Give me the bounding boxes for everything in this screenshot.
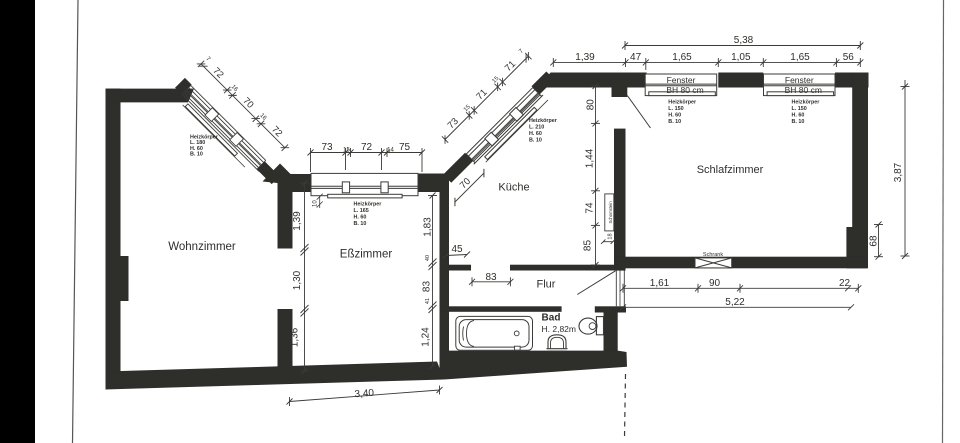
- svg-text:68: 68: [869, 235, 880, 247]
- svg-text:B. 10: B. 10: [529, 138, 542, 144]
- svg-text:Fenster: Fenster: [785, 75, 814, 85]
- svg-text:56: 56: [843, 52, 855, 63]
- svg-text:1,36: 1,36: [290, 327, 301, 347]
- svg-text:H. 2,82m: H. 2,82m: [542, 324, 577, 334]
- svg-text:83: 83: [485, 272, 497, 283]
- svg-text:H. 60: H. 60: [354, 215, 367, 221]
- svg-text:73: 73: [321, 142, 333, 153]
- svg-text:1,05: 1,05: [731, 52, 751, 63]
- svg-text:1,65: 1,65: [790, 52, 810, 63]
- svg-text:Schlafzimmer: Schlafzimmer: [697, 164, 764, 176]
- svg-text:Heizkörper: Heizkörper: [354, 202, 383, 208]
- svg-text:74: 74: [585, 202, 596, 214]
- svg-text:41: 41: [425, 298, 431, 304]
- svg-text:40: 40: [425, 255, 431, 261]
- svg-text:10: 10: [313, 200, 319, 207]
- svg-text:18: 18: [607, 233, 613, 239]
- svg-text:H. 60: H. 60: [668, 113, 681, 119]
- svg-text:B. 10: B. 10: [792, 119, 805, 125]
- svg-text:90: 90: [709, 278, 721, 289]
- svg-text:80: 80: [586, 99, 597, 111]
- svg-text:72: 72: [361, 142, 373, 153]
- svg-text:1,39: 1,39: [575, 52, 595, 63]
- svg-text:1,44: 1,44: [585, 148, 596, 168]
- svg-text:85: 85: [583, 240, 594, 252]
- svg-text:Schrank: Schrank: [703, 252, 723, 258]
- svg-text:Bad: Bad: [542, 313, 561, 324]
- svg-text:3,87: 3,87: [893, 162, 904, 182]
- svg-text:L. 210: L. 210: [529, 125, 544, 131]
- svg-text:B. 10: B. 10: [190, 152, 203, 158]
- svg-text:H. 60: H. 60: [529, 131, 542, 137]
- svg-text:BH 80 cm: BH 80 cm: [785, 85, 822, 95]
- svg-text:Flur: Flur: [537, 279, 556, 291]
- svg-text:L. 150: L. 150: [668, 106, 683, 112]
- svg-text:L. 165: L. 165: [354, 208, 369, 214]
- svg-text:47: 47: [630, 52, 642, 63]
- svg-text:1,30: 1,30: [292, 270, 303, 290]
- svg-text:15: 15: [343, 148, 350, 154]
- svg-text:H. 60: H. 60: [792, 113, 805, 119]
- svg-text:14: 14: [387, 148, 394, 154]
- svg-text:Küche: Küche: [498, 182, 529, 194]
- svg-text:Schornstein: Schornstein: [608, 201, 613, 224]
- svg-text:BH 80 cm: BH 80 cm: [666, 85, 703, 95]
- svg-text:3,40: 3,40: [354, 388, 375, 400]
- svg-text:Heizkörper: Heizkörper: [792, 100, 821, 106]
- svg-text:1,65: 1,65: [672, 52, 692, 63]
- svg-text:1,24: 1,24: [421, 327, 432, 347]
- svg-text:1,39: 1,39: [292, 211, 303, 231]
- svg-text:Heizkörper: Heizkörper: [668, 100, 697, 106]
- svg-text:Eßzimmer: Eßzimmer: [340, 249, 393, 261]
- svg-text:83: 83: [422, 281, 433, 293]
- svg-text:B. 10: B. 10: [354, 221, 367, 227]
- svg-text:22: 22: [839, 278, 851, 289]
- svg-text:Heizkörper: Heizkörper: [529, 118, 558, 124]
- svg-text:L. 150: L. 150: [792, 106, 807, 112]
- svg-text:B. 10: B. 10: [668, 119, 681, 125]
- svg-text:Wohnzimmer: Wohnzimmer: [168, 241, 236, 253]
- svg-text:45: 45: [451, 244, 463, 255]
- svg-text:1,61: 1,61: [650, 278, 670, 289]
- svg-text:1,83: 1,83: [423, 217, 434, 237]
- svg-text:5,22: 5,22: [725, 297, 745, 308]
- svg-text:5,38: 5,38: [734, 35, 754, 46]
- svg-text:75: 75: [399, 142, 411, 153]
- svg-text:Fenster: Fenster: [667, 75, 696, 85]
